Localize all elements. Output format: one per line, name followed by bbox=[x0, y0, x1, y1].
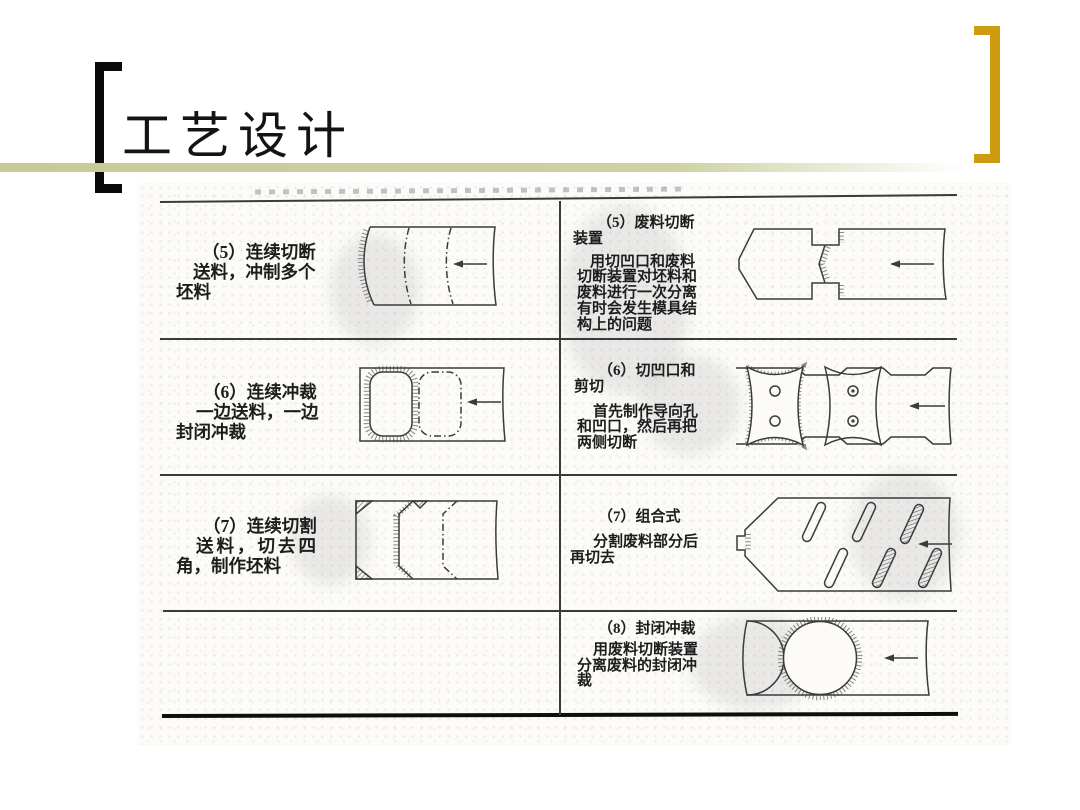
process-step-desc-line: 和凹口，然后再把 bbox=[577, 420, 750, 436]
process-step-heading: 剪切 bbox=[574, 380, 750, 396]
process-step-8-right-text: （8）封闭冲裁 用废料切断装置 分离废料的封闭冲 裁 bbox=[565, 622, 750, 690]
process-step-desc-line: 分割废料部分后 bbox=[593, 535, 750, 551]
page-title: 工艺设计 bbox=[122, 96, 354, 168]
process-step-desc-line: 构上的问题 bbox=[577, 318, 745, 334]
left-bracket-icon bbox=[95, 184, 122, 193]
process-step-desc-line: 切断装置对坯料和 bbox=[577, 270, 745, 286]
process-step-heading: （5）废料切断 bbox=[597, 216, 745, 232]
process-step-desc-line: 废料进行一次分离 bbox=[577, 286, 745, 302]
diagram-notched-strip-with-pilot-holes bbox=[733, 356, 955, 456]
diagram-strip-with-curved-shear-lines bbox=[353, 224, 498, 308]
process-step-6-right-text: （6）切凹口和 剪切 首先制作导向孔 和凹口，然后再把 两侧切断 bbox=[565, 364, 750, 452]
process-step-heading: 装置 bbox=[573, 232, 745, 248]
arrow-left-icon bbox=[453, 260, 487, 267]
process-step-desc-line: 用废料切断装置 bbox=[593, 643, 750, 659]
right-bracket-icon bbox=[974, 154, 1000, 163]
process-step-5-right-text: （5）废料切断 装置 用切凹口和废料 切断装置对坯料和 废料进行一次分离 有时会… bbox=[565, 216, 745, 334]
process-step-heading: （6）切凹口和 bbox=[598, 364, 750, 380]
arrow-left-icon bbox=[909, 402, 945, 409]
arrow-left-icon bbox=[890, 260, 934, 267]
process-step-desc-line: 裁 bbox=[577, 674, 750, 690]
diagram-strip-with-angled-slots bbox=[736, 492, 955, 598]
right-bracket-icon bbox=[974, 26, 1000, 35]
arrow-left-icon bbox=[918, 540, 952, 547]
process-step-7-right-text: （7）组合式 分割废料部分后 再切去 bbox=[565, 510, 750, 566]
arrow-left-icon bbox=[884, 654, 918, 661]
left-bracket-icon bbox=[95, 62, 104, 193]
left-bracket-icon bbox=[95, 62, 122, 71]
process-step-desc-line: 再切去 bbox=[570, 551, 750, 567]
diagram-blank-with-scrap-cutoff-device bbox=[728, 220, 955, 308]
table-column-divider bbox=[559, 201, 561, 715]
diagram-strip-with-rounded-rectangle-blanks bbox=[357, 364, 511, 446]
process-step-desc-line: 有时会发生模具结 bbox=[577, 302, 745, 318]
arrow-left-icon bbox=[467, 398, 501, 405]
process-step-heading: （7）组合式 bbox=[598, 510, 750, 526]
diagram-strip-with-corner-cut-blanks bbox=[353, 497, 504, 583]
process-step-heading: （8）封闭冲裁 bbox=[598, 622, 750, 638]
right-bracket-icon bbox=[990, 26, 1000, 163]
slide: 工艺设计 （5）连续切断 送料，冲制多个 坯料 （5）废料切断 装置 用切凹口和… bbox=[0, 0, 1080, 810]
process-step-desc-line: 分离废料的封闭冲 bbox=[577, 659, 750, 675]
diagram-strip-with-closed-circle-blank bbox=[740, 617, 935, 700]
process-step-desc-line: 两侧切断 bbox=[577, 436, 750, 452]
